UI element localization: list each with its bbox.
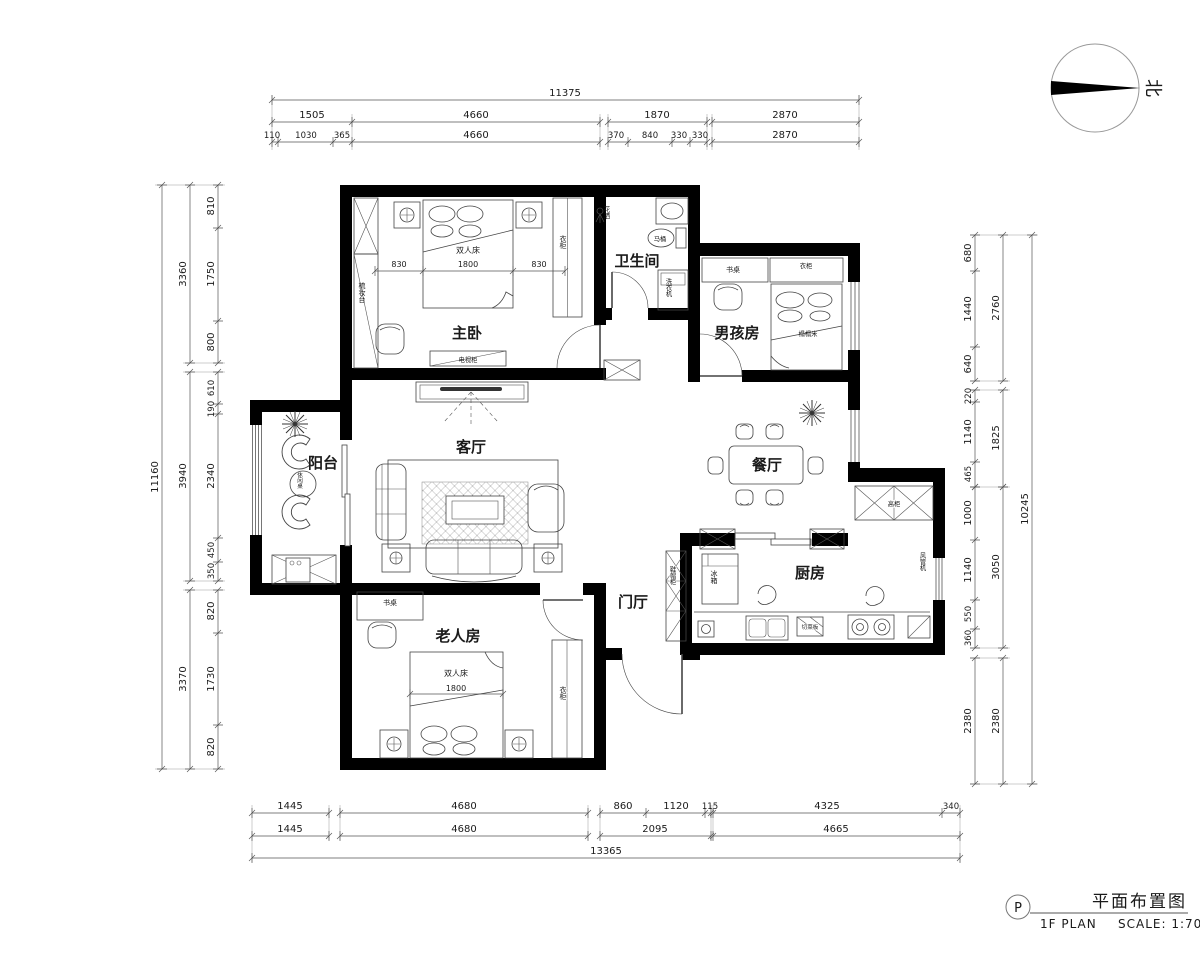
room-label-dining: 餐厅 <box>752 456 782 474</box>
dim-top: 370 <box>608 131 624 141</box>
elder-bed-label: 双人床 <box>444 668 468 678</box>
dim-left: 3940 <box>178 463 189 488</box>
cutting-board: 切菜板 <box>797 617 823 636</box>
dim-left: 820 <box>206 601 217 620</box>
dim-bottom: 4680 <box>451 824 476 835</box>
dims-bottom: 1445 4680 860 1120 115 4325 340 1445 468… <box>249 801 963 863</box>
boys-chair <box>714 284 742 310</box>
dim-left: 800 <box>206 332 217 351</box>
title-scale: SCALE: 1:70 <box>1118 917 1200 931</box>
fan-coil-label: 风管机 <box>919 552 926 573</box>
washer-label: 洗衣机 <box>665 277 672 299</box>
dim-bottom: 2095 <box>642 824 667 835</box>
boys-wardrobe <box>770 258 843 282</box>
dim-top: 4660 <box>463 130 488 141</box>
room-label-bath: 卫生间 <box>614 252 659 270</box>
stove <box>848 615 894 639</box>
balcony-table: 休闲桌 <box>290 471 316 497</box>
dim-right-total: 10245 <box>1020 493 1031 525</box>
boys-desk: 书桌 <box>702 258 768 282</box>
dim-top: 110 <box>264 131 280 141</box>
room-dining: 餐厅 <box>708 400 825 505</box>
dim-right: 1140 <box>963 419 974 444</box>
dim-top: 840 <box>642 131 658 141</box>
dim-right: 465 <box>964 466 974 482</box>
dim-left: 810 <box>206 196 217 215</box>
dim-bottom: 340 <box>943 802 959 812</box>
dim-left: 610 <box>207 380 217 396</box>
room-living: 客厅 <box>376 360 640 582</box>
dim-left: 350 <box>207 563 217 579</box>
dims-left: 11160 3360 3940 3370 810 1750 800 610 19… <box>150 182 225 772</box>
kitchen-fridge: 冰箱 <box>702 554 738 604</box>
floor-plan-canvas: 衣柜 双人床 梳妆台 电视柜 830 1800 830 主卧 马桶 <box>0 0 1200 960</box>
dim-left-total: 11160 <box>150 461 161 493</box>
dim-right: 550 <box>964 606 974 622</box>
kitchen-counter: 切菜板 <box>694 586 930 640</box>
north-needle <box>1051 81 1140 95</box>
boys-bed: 榻榻米 <box>771 284 842 370</box>
room-boy: 书桌 衣柜 榻榻米 男孩房 <box>702 258 843 370</box>
dim-bed-830r: 830 <box>531 260 546 269</box>
room-foyer: 鞋帽柜 门厅 <box>618 551 686 641</box>
tatami-label: 榻榻米 <box>799 329 819 338</box>
entry-door <box>622 654 682 714</box>
dim-right: 680 <box>963 243 974 262</box>
floor-plan-page: 衣柜 双人床 梳妆台 电视柜 830 1800 830 主卧 马桶 <box>0 0 1200 960</box>
dim-left: 3370 <box>178 666 189 691</box>
master-tv-cabinet: 电视柜 <box>430 351 506 366</box>
balcony-plant <box>282 411 308 437</box>
dims-top: 11375 1505 4660 1870 2870 110 1030 365 4… <box>264 88 862 150</box>
sofa-left <box>376 464 406 540</box>
master-bed-label: 双人床 <box>456 245 480 255</box>
room-bathroom: 马桶 花洒 洗衣机 卫生间 <box>596 198 688 310</box>
room-label-elder: 老人房 <box>434 627 480 645</box>
balcony-chair-top <box>282 435 310 469</box>
dim-top: 2870 <box>772 130 797 141</box>
room-label-master: 主卧 <box>452 324 482 342</box>
master-wardrobe-label: 衣柜 <box>559 234 567 250</box>
room-balcony: 休闲桌 阳台 <box>272 411 338 584</box>
shower-label: 花洒 <box>603 205 610 220</box>
dining-window <box>851 410 859 462</box>
dim-elder-1800: 1800 <box>446 684 466 693</box>
balcony-sliding-door <box>342 445 350 546</box>
balcony-window <box>253 425 262 535</box>
dim-right: 1440 <box>963 296 974 321</box>
dim-left: 3360 <box>178 261 189 286</box>
room-label-living: 客厅 <box>455 438 486 456</box>
elder-wardrobe-label: 衣柜 <box>559 685 567 701</box>
balcony-chair-bottom <box>282 495 310 529</box>
elder-desk: 书桌 <box>357 592 423 620</box>
master-tv-cabinet-label: 电视柜 <box>459 355 478 364</box>
windows <box>253 282 943 600</box>
dim-bottom: 4325 <box>814 801 839 812</box>
dim-left: 820 <box>206 737 217 756</box>
toilet-label: 马桶 <box>654 234 667 243</box>
bath-washer: 洗衣机 <box>658 270 688 310</box>
dim-top: 4660 <box>463 110 488 121</box>
dim-bottom: 1120 <box>663 801 688 812</box>
dim-top: 365 <box>334 131 350 141</box>
tv-screen <box>440 387 502 391</box>
dim-right: 1000 <box>963 500 974 525</box>
living-tv-cabinet <box>416 382 528 426</box>
dim-right: 2380 <box>963 708 974 733</box>
dim-top: 1870 <box>644 110 669 121</box>
master-bed: 双人床 <box>423 200 513 308</box>
master-door <box>557 325 600 368</box>
cutting-board-label: 切菜板 <box>802 623 819 631</box>
master-dresser: 梳妆台 <box>354 198 378 368</box>
boys-room-window <box>851 282 859 350</box>
room-label-boy: 男孩房 <box>714 324 759 342</box>
dim-bottom: 115 <box>702 802 718 812</box>
dim-bed-1800: 1800 <box>458 260 478 269</box>
dim-top-total: 11375 <box>549 88 581 99</box>
dim-bottom: 4680 <box>451 801 476 812</box>
floor-drain <box>698 621 714 637</box>
north-arrow: 北 <box>1051 44 1163 132</box>
room-master-bedroom: 衣柜 双人床 梳妆台 电视柜 830 1800 830 主卧 <box>354 198 582 368</box>
shoe-cabinet-label: 鞋帽柜 <box>669 565 676 587</box>
dim-bed-830l: 830 <box>391 260 406 269</box>
dim-left: 450 <box>207 542 217 558</box>
title-block: P 平面布置图 1F PLAN SCALE: 1:70 <box>1006 892 1200 931</box>
bath-door <box>612 272 648 308</box>
room-kitchen: 高柜 冰箱 切菜板 风管机 厨房 <box>694 486 933 640</box>
title-mark: P <box>1014 901 1022 916</box>
kitchen-tall-cabinet: 高柜 <box>855 486 933 520</box>
dim-right: 2760 <box>991 295 1002 320</box>
armchair <box>528 484 564 532</box>
dim-top: 1505 <box>299 110 324 121</box>
elder-desk-label: 书桌 <box>383 598 397 607</box>
leisure-table-label: 休闲桌 <box>296 471 303 490</box>
dim-top: 330 <box>671 131 687 141</box>
title-plan: 1F PLAN <box>1040 917 1097 931</box>
dim-right: 640 <box>963 354 974 373</box>
bath-toilet: 马桶 <box>648 228 686 248</box>
tall-cabinet-label: 高柜 <box>888 499 901 508</box>
dim-bottom-total: 13365 <box>590 846 622 857</box>
title-cn: 平面布置图 <box>1092 892 1187 912</box>
dim-right: 220 <box>964 388 974 404</box>
hall-cabinet <box>604 360 640 380</box>
elder-chair <box>368 622 396 648</box>
dim-top: 1030 <box>295 131 317 141</box>
master-dresser-label: 梳妆台 <box>358 281 366 304</box>
room-label-balcony: 阳台 <box>308 454 338 472</box>
dim-left: 1750 <box>206 261 217 286</box>
north-label: 北 <box>1142 79 1163 97</box>
dining-plant <box>799 400 825 426</box>
dim-right: 3050 <box>991 554 1002 579</box>
dim-left: 2340 <box>206 463 217 488</box>
faucet-curves <box>758 586 884 606</box>
fridge-label: 冰箱 <box>710 569 718 585</box>
dims-right: 10245 2760 1825 3050 2380 680 1440 640 2… <box>963 232 1038 787</box>
dim-left: 190 <box>207 401 217 417</box>
coffee-table <box>446 496 504 524</box>
room-elder: 书桌 双人床 1800 衣柜 老人房 <box>357 592 582 758</box>
dim-right: 360 <box>964 630 974 646</box>
room-label-foyer: 门厅 <box>618 593 648 611</box>
dim-top: 2870 <box>772 110 797 121</box>
dim-right: 2380 <box>991 708 1002 733</box>
dim-bottom: 4665 <box>823 824 848 835</box>
boys-desk-label: 书桌 <box>726 265 740 274</box>
kitchen-window <box>936 558 942 600</box>
master-chair <box>376 324 404 354</box>
elder-bed: 双人床 1800 <box>407 652 506 758</box>
dim-top: 330 <box>692 131 708 141</box>
boys-wardrobe-label: 衣柜 <box>800 261 813 270</box>
balcony-washer-zone <box>272 555 336 584</box>
dim-right: 1140 <box>963 557 974 582</box>
sofa-long <box>426 540 522 582</box>
elder-door <box>543 600 583 640</box>
dim-right: 1825 <box>991 425 1002 450</box>
dim-bottom: 1445 <box>277 824 302 835</box>
room-label-kitchen: 厨房 <box>795 564 825 582</box>
kitchen-sliding-door <box>735 533 811 545</box>
dim-bottom: 1445 <box>277 801 302 812</box>
dim-bottom: 860 <box>613 801 632 812</box>
dim-left: 1730 <box>206 666 217 691</box>
